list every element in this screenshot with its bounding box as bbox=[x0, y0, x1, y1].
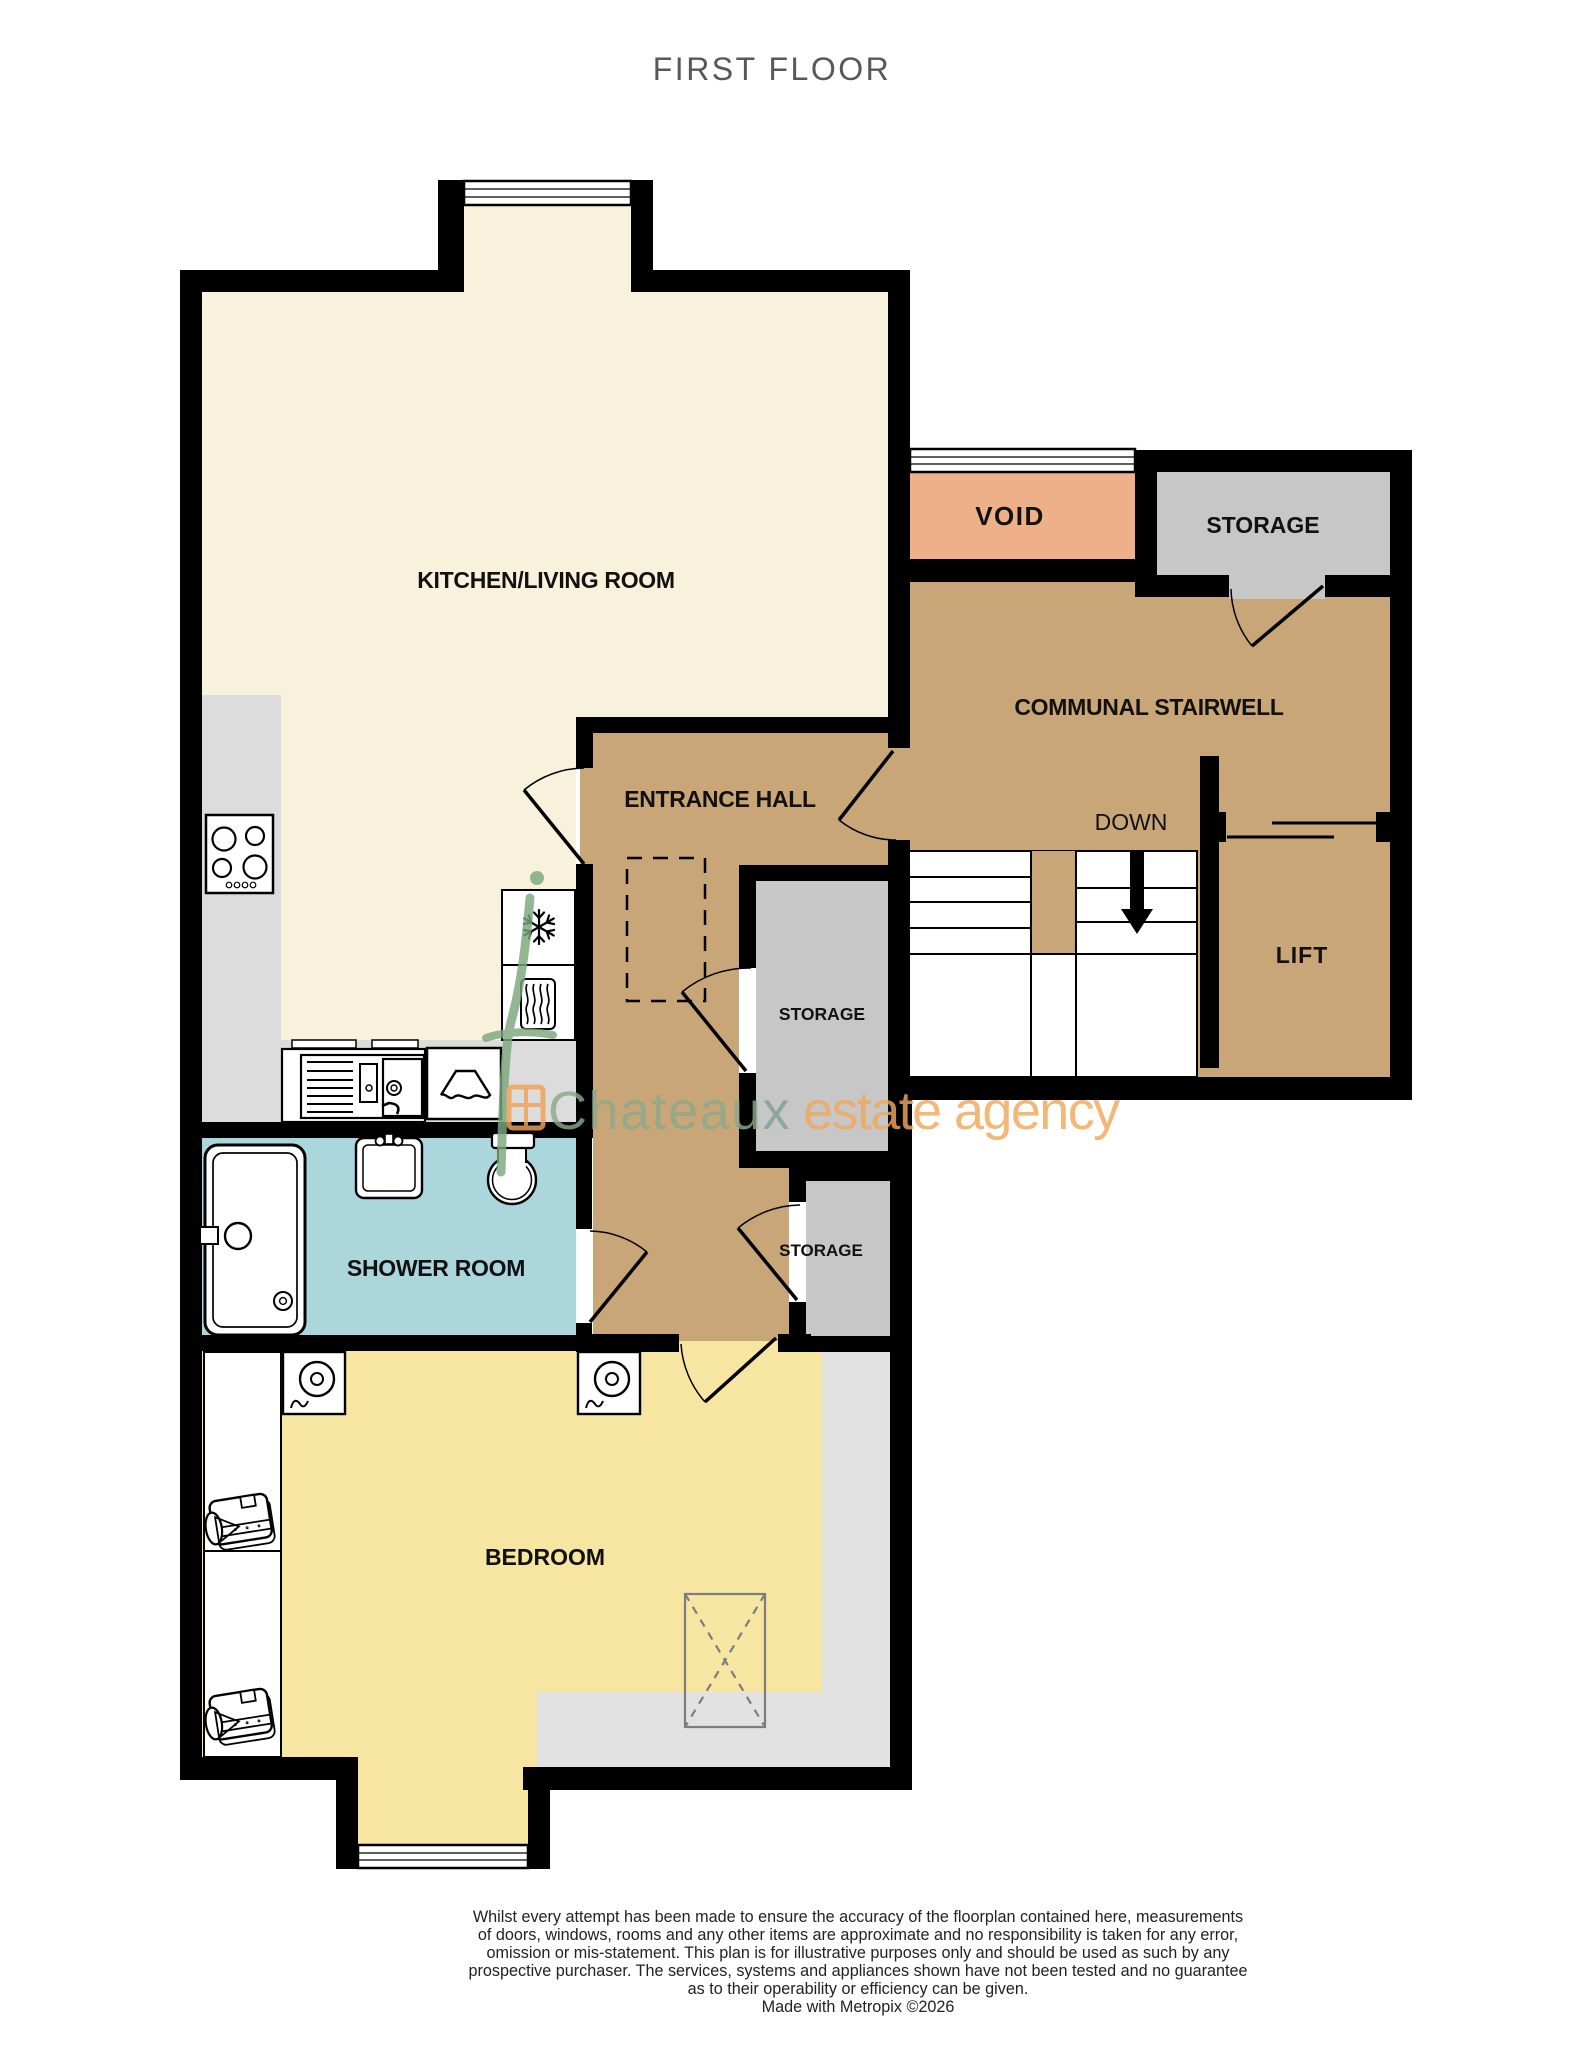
svg-text:KITCHEN/LIVING ROOM: KITCHEN/LIVING ROOM bbox=[417, 567, 675, 593]
svg-text:prospective purchaser. The ser: prospective purchaser. The services, sys… bbox=[469, 1962, 1248, 1980]
svg-text:as to their operability or eff: as to their operability or efficiency ca… bbox=[688, 1980, 1029, 1998]
svg-text:Made with Metropix ©2026: Made with Metropix ©2026 bbox=[762, 1998, 955, 2016]
svg-text:STORAGE: STORAGE bbox=[1206, 512, 1319, 538]
svg-text:STORAGE: STORAGE bbox=[779, 1241, 863, 1260]
svg-text:LIFT: LIFT bbox=[1276, 942, 1329, 968]
svg-text:omission or mis-statement. Thi: omission or mis-statement. This plan is … bbox=[487, 1944, 1231, 1962]
svg-text:ENTRANCE HALL: ENTRANCE HALL bbox=[624, 786, 816, 812]
svg-text:COMMUNAL STAIRWELL: COMMUNAL STAIRWELL bbox=[1014, 694, 1284, 720]
svg-text:of doors, windows, rooms and a: of doors, windows, rooms and any other i… bbox=[478, 1926, 1238, 1944]
svg-text:Chateaux estate agency: Chateaux estate agency bbox=[548, 1081, 1120, 1141]
svg-text:SHOWER ROOM: SHOWER ROOM bbox=[347, 1255, 525, 1281]
svg-text:FIRST FLOOR: FIRST FLOOR bbox=[653, 51, 891, 87]
svg-text:DOWN: DOWN bbox=[1095, 809, 1168, 835]
svg-text:BEDROOM: BEDROOM bbox=[485, 1544, 605, 1570]
svg-text:Whilst every attempt has been: Whilst every attempt has been made to en… bbox=[473, 1908, 1243, 1926]
svg-text:VOID: VOID bbox=[975, 501, 1045, 531]
svg-text:STORAGE: STORAGE bbox=[779, 1004, 865, 1024]
